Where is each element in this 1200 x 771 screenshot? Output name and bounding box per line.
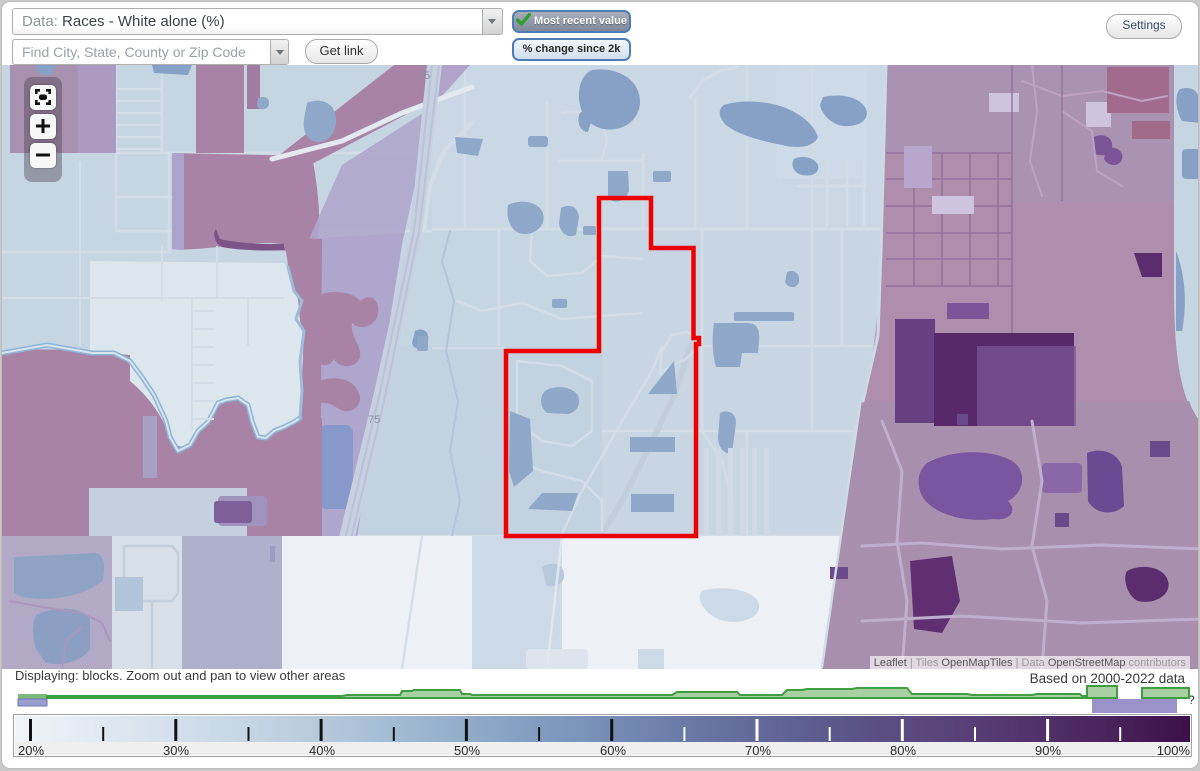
svg-text:75: 75: [368, 414, 380, 426]
svg-text:75: 75: [418, 70, 430, 82]
